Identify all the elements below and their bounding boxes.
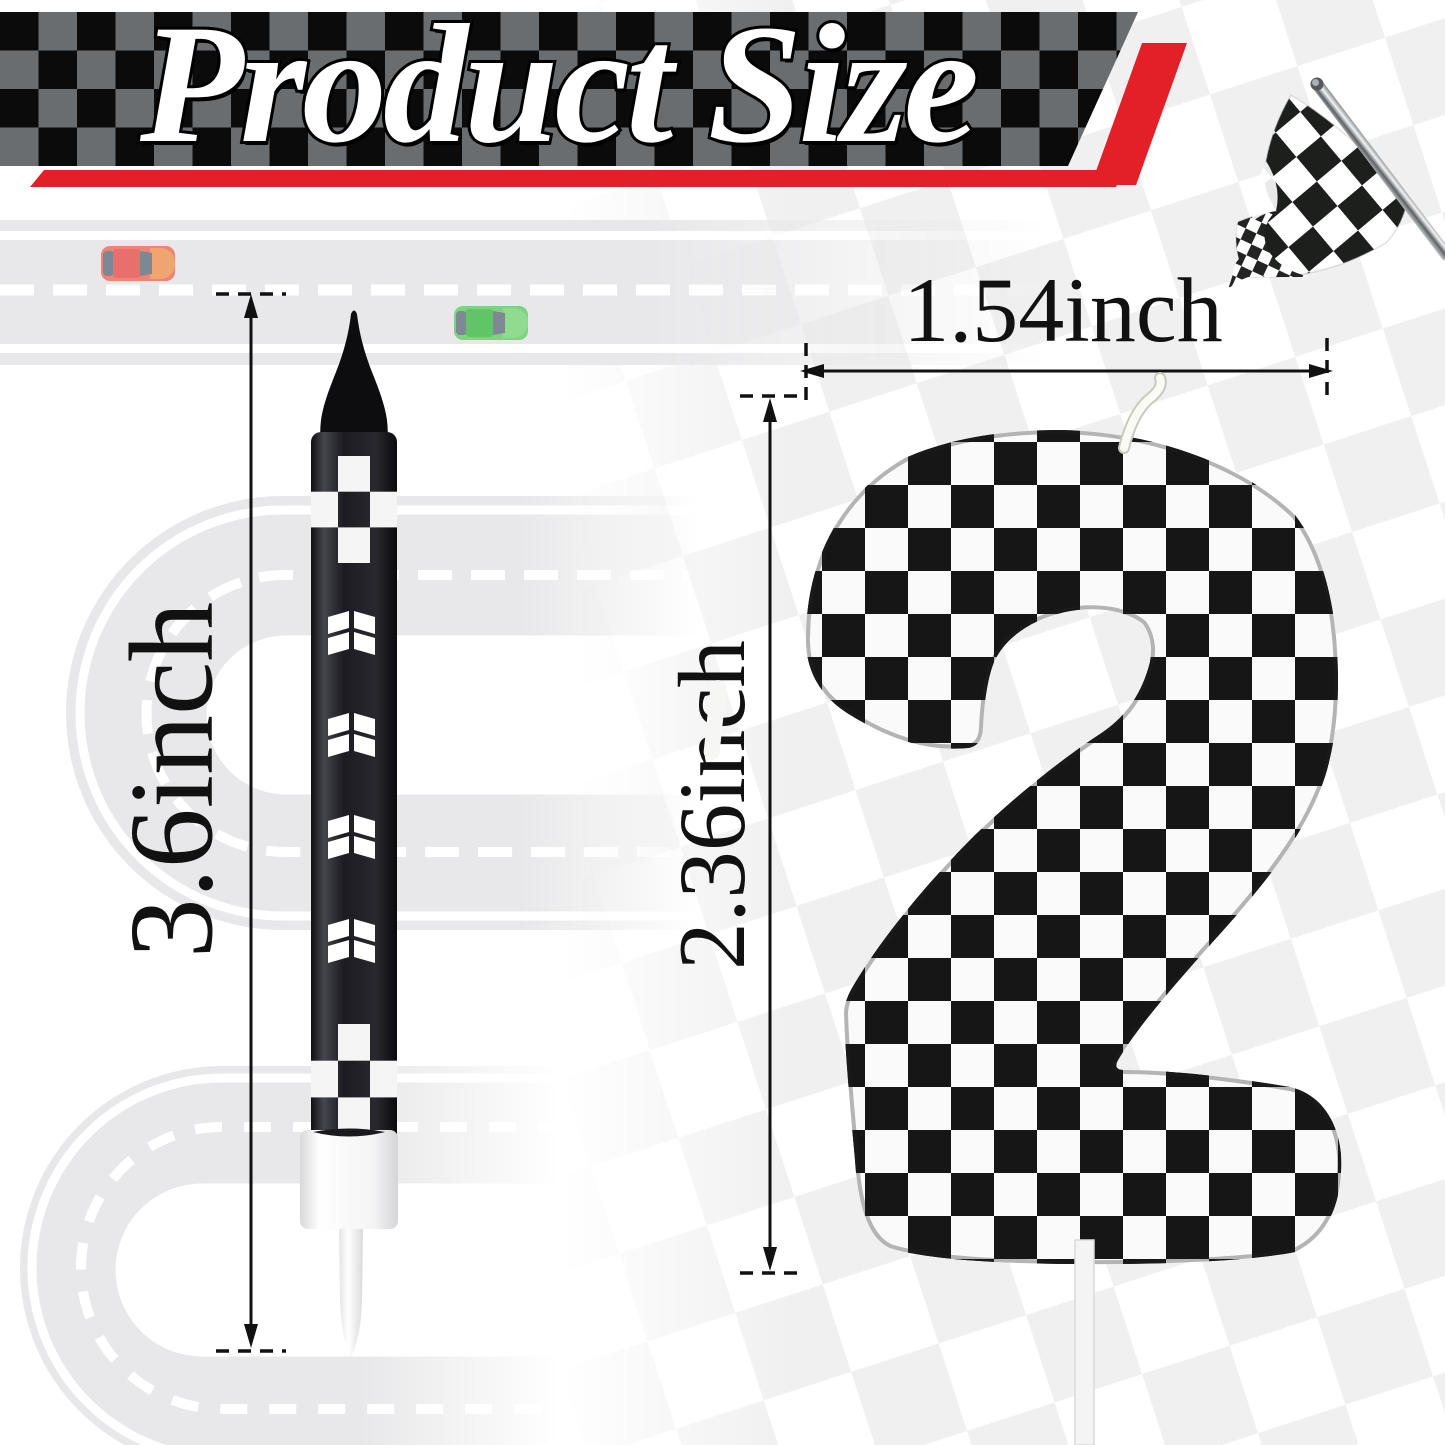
svg-text:3.6inch: 3.6inch [105,602,238,959]
svg-text:Product Size: Product Size [139,0,976,178]
svg-text:1.54inch: 1.54inch [903,259,1222,361]
